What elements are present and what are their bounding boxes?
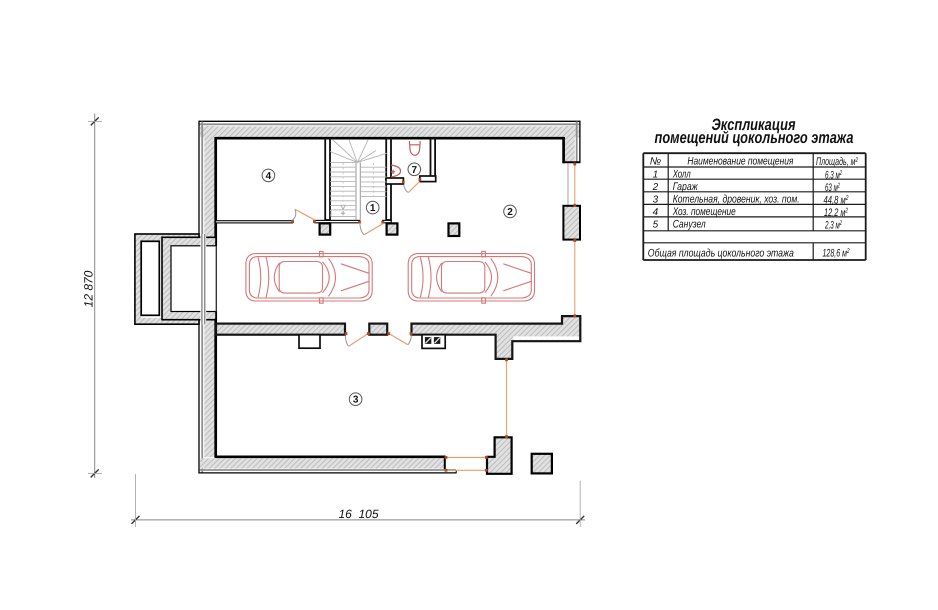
svg-text:Общая площадь цокольного этажа: Общая площадь цокольного этажа [648,247,794,259]
svg-text:Хоз. помещение: Хоз. помещение [672,206,736,218]
svg-text:63 м2: 63 м2 [825,182,840,194]
svg-text:Площадь, м2: Площадь, м2 [816,156,858,168]
svg-text:Котельная, дровеник, хоз. пом.: Котельная, дровеник, хоз. пом. [673,194,800,206]
svg-text:Гараж: Гараж [673,181,698,193]
svg-text:1: 1 [370,203,376,214]
svg-text:3: 3 [653,195,659,206]
svg-text:Холл: Холл [672,169,691,181]
svg-text:№: № [650,155,661,167]
svg-text:128,6 м2: 128,6 м2 [823,247,850,259]
svg-text:44,8 м2: 44,8 м2 [824,194,849,206]
svg-text:12 870: 12 870 [82,270,96,307]
svg-text:4: 4 [266,171,272,182]
svg-text:2: 2 [507,207,513,218]
svg-text:7: 7 [412,165,418,176]
svg-text:3: 3 [353,395,359,406]
svg-text:6,3 м2: 6,3 м2 [825,169,842,181]
svg-text:помещений цокольного этажа: помещений цокольного этажа [655,129,854,147]
svg-text:1: 1 [653,170,659,181]
svg-text:5: 5 [653,220,659,231]
svg-text:4: 4 [653,207,659,218]
svg-text:2: 2 [652,182,659,193]
svg-text:12,2 м2: 12,2 м2 [824,207,848,219]
svg-text:16 105: 16 105 [338,507,378,521]
svg-text:Наименование помещения: Наименование помещения [687,155,793,167]
svg-text:2,3 м2: 2,3 м2 [824,219,842,231]
svg-text:Санузел: Санузел [673,219,706,231]
